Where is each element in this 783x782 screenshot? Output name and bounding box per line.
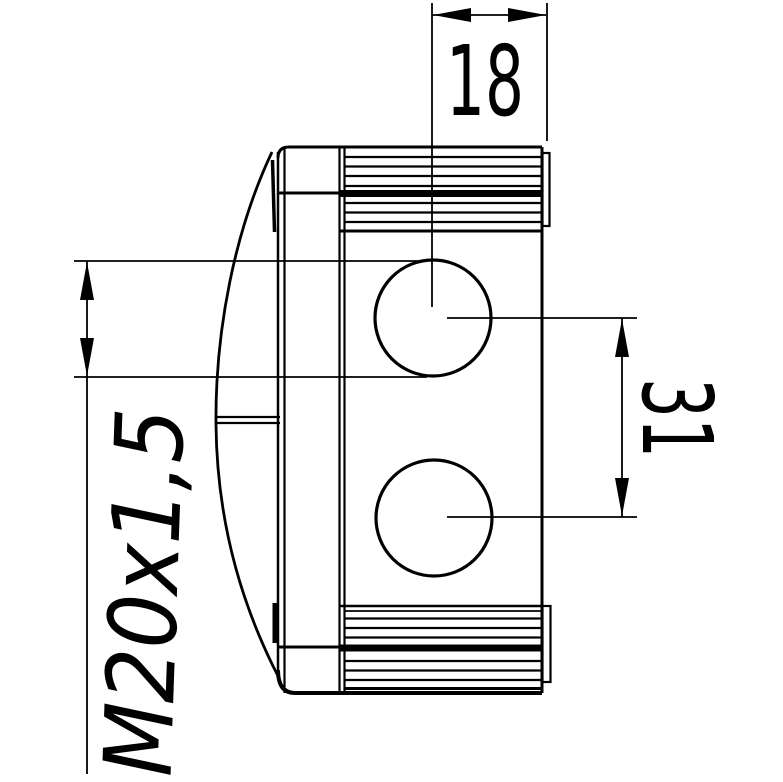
dim18-arrow-right (508, 8, 546, 22)
dim18-arrow-left (433, 8, 471, 22)
bottom-gland-right-cap (543, 606, 551, 682)
lid-dome-curve (216, 152, 278, 676)
lid-inner-sliver (273, 160, 275, 232)
dimension-thread: M20x1,5 (74, 261, 427, 778)
top-gland-right-cap (543, 153, 550, 226)
knockout-holes (375, 260, 492, 576)
thread-arrow-up (80, 262, 94, 300)
thread-arrow-down (80, 338, 94, 376)
dim31-arrow-down (615, 478, 629, 516)
dim18-label: 18 (446, 25, 524, 138)
dim31-label: 31 (620, 378, 733, 458)
technical-drawing-page: 18 31 M20x1,5 (0, 0, 783, 782)
thread-label: M20x1,5 (85, 406, 207, 778)
dimension-31: 31 (447, 318, 733, 517)
bottom-gland-section (340, 606, 551, 689)
lid-hinge-detail (273, 603, 278, 643)
top-gland-section (340, 153, 550, 231)
knockout-hole-bottom (376, 460, 492, 576)
junction-box-side-view-drawing: 18 31 M20x1,5 (0, 0, 783, 782)
dim31-arrow-up (615, 319, 629, 357)
